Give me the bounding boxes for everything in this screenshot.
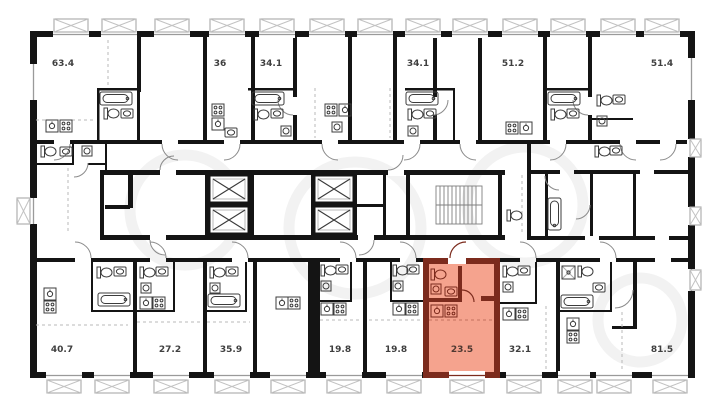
balcony-vent-box xyxy=(597,380,631,393)
floor-plan: 63.4 36 34.1 34.1 51.2 51.4 40.7 27.2 35… xyxy=(0,0,720,410)
unit-area-label: 19.8 xyxy=(385,345,407,355)
unit-area-label: 36 xyxy=(214,59,227,69)
balcony-vent-box xyxy=(387,380,421,393)
balcony-vent-box xyxy=(653,380,687,393)
unit-area-label: 35.9 xyxy=(220,345,242,355)
balcony-vent-box xyxy=(17,198,30,224)
unit-area-label: 51.4 xyxy=(651,59,673,69)
balcony-vent-box xyxy=(310,19,344,32)
balcony-vent-box xyxy=(507,380,541,393)
balcony-vent-box xyxy=(645,19,679,32)
unit-area-label: 51.2 xyxy=(502,59,524,69)
balcony-vent-box xyxy=(54,19,88,32)
elevator-shaft xyxy=(314,206,354,234)
balcony-vent-box xyxy=(406,19,440,32)
balcony-vent-box xyxy=(601,19,635,32)
balcony-vent-box xyxy=(690,270,701,290)
balcony-vent-box xyxy=(210,19,244,32)
unit-area-label: 34.1 xyxy=(260,59,282,69)
balcony-vent-box xyxy=(271,380,305,393)
balcony-vent-box xyxy=(453,19,487,32)
elevator-shaft xyxy=(209,206,249,234)
balcony-vent-box xyxy=(503,19,537,32)
balcony-vent-box xyxy=(358,19,392,32)
unit-area-label: 32.1 xyxy=(509,345,531,355)
balcony-vent-box xyxy=(558,380,592,393)
balcony-vent-box xyxy=(95,380,129,393)
balcony-vent-box xyxy=(327,380,361,393)
balcony-vent-box xyxy=(551,19,585,32)
balcony-vent-box xyxy=(690,207,701,225)
unit-area-label: 63.4 xyxy=(52,59,74,69)
highlighted-unit-area-label: 23.5 xyxy=(451,345,473,355)
elevator-shaft xyxy=(209,175,249,203)
balcony-vent-box xyxy=(450,380,484,393)
floor-plan-page: 63.4 36 34.1 34.1 51.2 51.4 40.7 27.2 35… xyxy=(0,0,720,410)
balcony-vent-box xyxy=(47,380,81,393)
balcony-vent-box xyxy=(690,139,701,157)
elevator-shaft xyxy=(314,175,354,203)
balcony-vent-box xyxy=(215,380,249,393)
balcony-vent-box xyxy=(102,19,136,32)
unit-area-label: 19.8 xyxy=(329,345,351,355)
balcony-vent-box xyxy=(154,380,188,393)
balcony-vent-box xyxy=(155,19,189,32)
unit-area-label: 40.7 xyxy=(51,345,73,355)
unit-area-label: 27.2 xyxy=(159,345,181,355)
balcony-vent-box xyxy=(260,19,294,32)
unit-area-label: 34.1 xyxy=(407,59,429,69)
unit-area-label: 81.5 xyxy=(651,345,673,355)
